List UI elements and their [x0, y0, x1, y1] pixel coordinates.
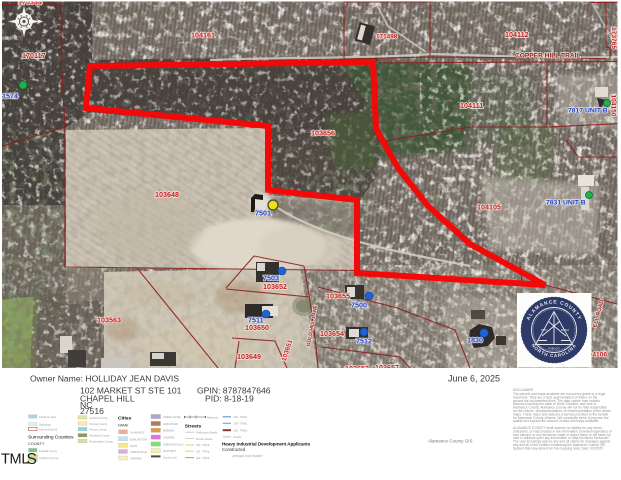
svg-text:104161: 104161: [191, 31, 215, 40]
svg-text:1574: 1574: [2, 92, 18, 101]
svg-text:103656: 103656: [311, 129, 335, 138]
svg-text:170344: 170344: [18, 0, 42, 7]
svg-text:WHITSETT: WHITSETT: [163, 449, 177, 453]
svg-text:7817 UNIT B: 7817 UNIT B: [568, 108, 608, 115]
svg-text:7831 UNIT B: 7831 UNIT B: [546, 200, 586, 207]
svg-text:COPPER HILL TRAIL: COPPER HILL TRAIL: [515, 53, 580, 60]
svg-text:County Line: County Line: [163, 455, 177, 459]
svg-text:103657: 103657: [375, 363, 399, 372]
svg-text:PUBLICO: PUBLICO: [548, 347, 559, 351]
svg-text:Surrounding Counties: Surrounding Counties: [28, 435, 74, 441]
svg-text:170117: 170117: [22, 51, 46, 60]
svg-text:System that may arise from the: System that may arise from the mapping d…: [513, 446, 603, 450]
svg-text:103563: 103563: [97, 316, 121, 325]
svg-text:103655: 103655: [326, 292, 350, 301]
svg-text:104111: 104111: [460, 101, 483, 110]
svg-text:GREEN LEVEL: GREEN LEVEL: [163, 415, 182, 419]
svg-text:103653: 103653: [345, 364, 369, 373]
svg-text:201 - TRAIL: 201 - TRAIL: [196, 449, 210, 453]
svg-text:PRO: PRO: [541, 328, 548, 332]
svg-text:GIBSONVILLE: GIBSONVILLE: [130, 450, 147, 454]
svg-text:NAME: NAME: [118, 424, 129, 428]
svg-text:Heavy Industrial Development A: Heavy Industrial Development Applicants: [222, 442, 311, 447]
svg-text:104105: 104105: [477, 203, 501, 212]
svg-text:Preliminary Roads: Preliminary Roads: [196, 430, 218, 434]
svg-text:quality and expand the amount: quality and expand the amount of data an…: [513, 419, 599, 423]
svg-text:Parcels New 50: Parcels New 50: [39, 427, 58, 431]
svg-text:Railroads: Railroads: [207, 416, 219, 420]
svg-text:7501: 7501: [255, 209, 271, 218]
svg-text:Randolph County: Randolph County: [90, 434, 111, 438]
svg-text:Alamance County GIS: Alamance County GIS: [428, 439, 473, 444]
svg-text:Cities: Cities: [118, 416, 132, 422]
svg-text:Ponds & Lakes: Ponds & Lakes: [39, 415, 57, 419]
svg-text:Owner Name: HOLLIDAY JEAN DAVI: Owner Name: HOLLIDAY JEAN DAVIS: [30, 374, 179, 384]
svg-text:PID: 8-18-19: PID: 8-18-19: [205, 394, 254, 404]
svg-text:Hydrology: Hydrology: [39, 422, 51, 426]
svg-text:Caswell County: Caswell County: [39, 449, 58, 453]
svg-text:104112: 104112: [505, 30, 529, 39]
svg-text:Chatham County: Chatham County: [39, 456, 59, 460]
svg-text:27516: 27516: [80, 406, 104, 416]
svg-text:HAW RIVER: HAW RIVER: [163, 422, 178, 426]
svg-text:103648: 103648: [155, 190, 179, 199]
svg-text:Orange County: Orange County: [90, 422, 108, 426]
svg-text:BONO: BONO: [561, 328, 570, 332]
svg-text:103649: 103649: [237, 352, 261, 361]
svg-text:ELON: ELON: [130, 444, 137, 448]
svg-text:S: S: [27, 451, 37, 468]
svg-text:COUNTY: COUNTY: [28, 441, 45, 446]
svg-text:104150: 104150: [610, 94, 617, 116]
svg-text:APPLIED FOR PERMIT: APPLIED FOR PERMIT: [232, 454, 263, 458]
svg-text:June 6, 2025: June 6, 2025: [448, 374, 500, 384]
svg-text:173765: 173765: [610, 27, 617, 49]
svg-text:Roads: Roads: [234, 435, 242, 439]
svg-text:OSSIPEE: OSSIPEE: [163, 436, 175, 440]
svg-text:SWEPSONVILLE: SWEPSONVILLE: [163, 443, 184, 447]
svg-text:7512: 7512: [356, 337, 372, 346]
svg-text:Guilford County: Guilford County: [90, 416, 109, 420]
svg-text:171498: 171498: [376, 34, 398, 41]
svg-text:103654: 103654: [320, 329, 344, 338]
svg-text:Constructed: Constructed: [222, 447, 246, 452]
svg-text:205 - TRAIL: 205 - TRAIL: [234, 428, 248, 432]
svg-text:7511: 7511: [248, 316, 264, 325]
svg-text:7503: 7503: [263, 274, 279, 283]
svg-text:202 - TRAIL: 202 - TRAIL: [196, 456, 210, 460]
svg-text:MEBANE: MEBANE: [163, 429, 174, 433]
svg-text:TML: TML: [1, 452, 29, 468]
svg-text:7500: 7500: [351, 301, 367, 310]
svg-text:Rockingham County: Rockingham County: [90, 440, 114, 444]
svg-text:204 - TRAIL: 204 - TRAIL: [234, 422, 248, 426]
svg-text:Private Roads: Private Roads: [196, 437, 213, 441]
svg-text:Streets: Streets: [185, 424, 202, 430]
svg-text:1830: 1830: [467, 336, 483, 345]
svg-text:BURLINGTON: BURLINGTON: [130, 437, 147, 441]
svg-text:Person County: Person County: [90, 428, 108, 432]
svg-text:203 - TRAIL: 203 - TRAIL: [234, 415, 248, 419]
svg-text:200 - TRAIL: 200 - TRAIL: [196, 443, 210, 447]
svg-text:GRAHAM: GRAHAM: [130, 457, 141, 461]
svg-text:ALAMANCE: ALAMANCE: [130, 430, 145, 434]
svg-text:103652: 103652: [263, 282, 287, 291]
